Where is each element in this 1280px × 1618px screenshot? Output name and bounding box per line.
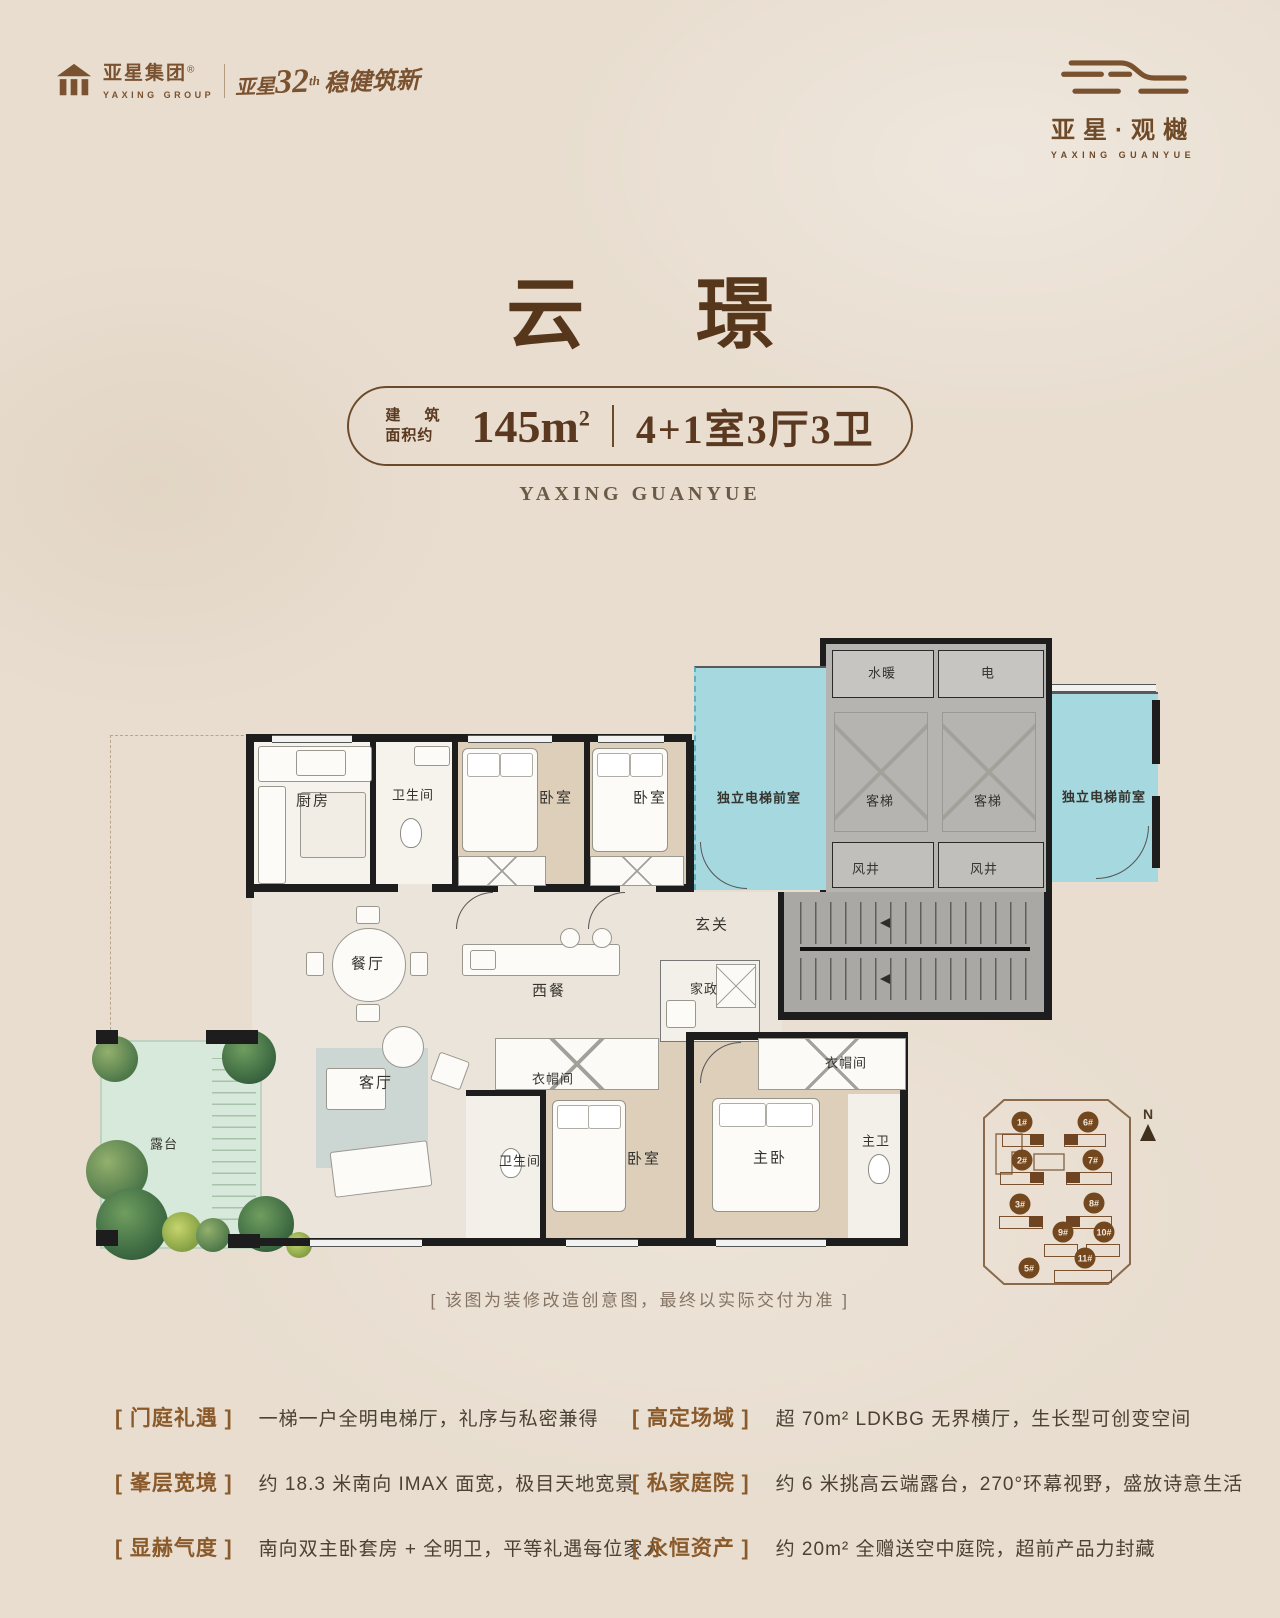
wall <box>1044 892 1052 1018</box>
closet-strip <box>458 856 546 886</box>
feature-tag: [ 门庭礼遇 ] <box>115 1402 233 1432</box>
door-gap <box>398 884 432 892</box>
feature-text: 约 18.3 米南向 IMAX 面宽，极目天地宽景 <box>259 1469 636 1496</box>
building-badge-3: 3# <box>1010 1194 1031 1215</box>
feature-tag: [ 显赫气度 ] <box>115 1532 233 1562</box>
room-label-elevator1: 客梯 <box>866 791 894 810</box>
bath1-sink <box>414 746 450 766</box>
building-badge-10: 10# <box>1094 1222 1115 1243</box>
room-label-lobby-left: 独立电梯前室 <box>717 788 801 807</box>
building-badge-5: 5# <box>1019 1258 1040 1279</box>
bed-3 <box>552 1100 626 1212</box>
wall <box>206 1030 258 1044</box>
stair-arrow <box>880 918 890 928</box>
room-label-shaft1: 风井 <box>852 859 880 878</box>
kitchen-sink <box>296 750 346 776</box>
room-label-master-bath: 主卫 <box>862 1131 890 1150</box>
bath1-toilet <box>400 818 422 848</box>
building-shape <box>1000 1172 1044 1185</box>
room-label-kitchen: 厨房 <box>296 790 330 811</box>
feature-text: 一梯一户全明电梯厅，礼序与私密兼得 <box>259 1404 599 1431</box>
stair-flight-upper <box>800 902 1030 944</box>
stair-rail <box>800 947 1030 951</box>
room-label-living: 客厅 <box>359 1072 393 1093</box>
room-label-lobby-right: 独立电梯前室 <box>1062 787 1146 806</box>
site-map: 1# 6# 2# 7# 3# 8# 9# 10# 11# 5# <box>980 1098 1136 1290</box>
armchair <box>382 1026 424 1068</box>
building-badge-9: 9# <box>1053 1222 1074 1243</box>
wind-shaft-cell-1 <box>832 842 934 888</box>
closet-strip <box>590 856 684 886</box>
building-badge-6: 6# <box>1078 1112 1099 1133</box>
room-label-closet2: 衣帽间 <box>825 1053 867 1072</box>
room-label-terrace: 露台 <box>150 1134 178 1153</box>
room-label-bath2: 卫生间 <box>499 1151 541 1170</box>
room-label-elevator2: 客梯 <box>974 791 1002 810</box>
wall <box>778 1012 1052 1020</box>
dining-chair <box>356 906 380 924</box>
building-shape <box>999 1216 1043 1229</box>
feature-tag: [ 私家庭院 ] <box>632 1467 750 1497</box>
closet-strip <box>495 1038 659 1090</box>
bed-1 <box>462 748 538 852</box>
wall <box>246 734 254 898</box>
elevator-cab-1 <box>834 712 928 832</box>
master-toilet <box>868 1154 890 1184</box>
wall <box>466 1090 546 1096</box>
window <box>468 735 552 743</box>
plant <box>196 1218 230 1252</box>
wall <box>686 1032 694 1244</box>
wall <box>1152 796 1160 868</box>
feature-2: [ 高定场域 ] 超 70m² LDKBG 无界横厅，生长型可创变空间 <box>632 1402 1191 1432</box>
north-label: N <box>1138 1106 1158 1122</box>
feature-text: 约 20m² 全赠送空中庭院，超前产品力封藏 <box>776 1534 1156 1561</box>
room-label-western: 西餐 <box>532 980 566 1001</box>
feature-text: 南向双主卧套房 + 全明卫，平等礼遇每位家人 <box>259 1534 664 1561</box>
room-label-dining: 餐厅 <box>351 953 385 974</box>
room-label-shaft2: 风井 <box>970 859 998 878</box>
north-indicator: N <box>1138 1106 1158 1141</box>
dining-chair <box>410 952 428 976</box>
feature-tag: [ 高定场域 ] <box>632 1402 750 1432</box>
wall <box>96 1030 118 1044</box>
room-label-closet1: 衣帽间 <box>532 1069 574 1088</box>
wall <box>1152 700 1160 764</box>
kitchen-cabinet <box>258 786 286 884</box>
property-line-left <box>110 735 111 1040</box>
feature-5: [ 显赫气度 ] 南向双主卧套房 + 全明卫，平等礼遇每位家人 <box>115 1532 663 1562</box>
feature-4: [ 私家庭院 ] 约 6 米挑高云端露台，270°环幕视野，盛放诗意生活 <box>632 1467 1243 1497</box>
feature-3: [ 峯层宽境 ] 约 18.3 米南向 IMAX 面宽，极目天地宽景 <box>115 1467 635 1497</box>
room-label-bath1: 卫生间 <box>392 785 434 804</box>
window <box>272 735 352 743</box>
room-label-bedroom1: 卧室 <box>539 787 573 808</box>
feature-1: [ 门庭礼遇 ] 一梯一户全明电梯厅，礼序与私密兼得 <box>115 1402 599 1432</box>
building-badge-1: 1# <box>1012 1112 1033 1133</box>
washer <box>666 1000 696 1028</box>
building-badge-11: 11# <box>1075 1248 1096 1269</box>
building-shape <box>1054 1270 1112 1283</box>
building-shape <box>1002 1134 1044 1147</box>
plan-caption: [ 该图为装修改造创意图，最终以实际交付为准 ] <box>0 1286 1280 1311</box>
site-map-outline <box>980 1098 1136 1290</box>
housekeeping-cabinet <box>716 964 756 1008</box>
wall <box>778 892 784 1018</box>
building-badge-7: 7# <box>1083 1150 1104 1171</box>
floor-plan: 厨房 卫生间 卧室 卧室 独立电梯前室 水暖 电 客梯 客梯 风井 风井 独立电… <box>0 0 1280 1618</box>
wall <box>686 740 694 890</box>
feature-tag: [ 峯层宽境 ] <box>115 1467 233 1497</box>
building-badge-2: 2# <box>1012 1150 1033 1171</box>
feature-text: 约 6 米挑高云端露台，270°环幕视野，盛放诗意生活 <box>776 1469 1243 1496</box>
room-label-bedroom3: 卧室 <box>627 1148 661 1169</box>
building-shape <box>1044 1244 1078 1257</box>
room-label-master: 主卧 <box>753 1147 787 1168</box>
room-label-water: 水暖 <box>868 663 896 682</box>
building-shape <box>1064 1134 1106 1147</box>
window <box>1052 684 1156 692</box>
feature-6: [ 永恒资产 ] 约 20m² 全赠送空中庭院，超前产品力封藏 <box>632 1532 1156 1562</box>
stair-arrow <box>880 974 890 984</box>
building-shape <box>1066 1172 1112 1185</box>
room-label-housekeeping: 家政 <box>690 979 718 998</box>
stool <box>560 928 580 948</box>
window <box>716 1239 826 1247</box>
elevator-cab-2 <box>942 712 1036 832</box>
window <box>310 1239 422 1247</box>
room-label-electrical: 电 <box>981 663 995 682</box>
room-label-foyer: 玄关 <box>695 914 729 935</box>
window <box>566 1239 638 1247</box>
feature-text: 超 70m² LDKBG 无界横厅，生长型可创变空间 <box>776 1404 1192 1431</box>
room-label-bedroom2: 卧室 <box>633 787 667 808</box>
north-arrow-icon <box>1140 1124 1156 1141</box>
stool <box>592 928 612 948</box>
island-sink <box>470 950 496 970</box>
dining-chair <box>306 952 324 976</box>
building-badge-8: 8# <box>1084 1193 1105 1214</box>
feature-tag: [ 永恒资产 ] <box>632 1532 750 1562</box>
window <box>598 735 664 743</box>
dining-chair <box>356 1004 380 1022</box>
poster: 亚星集团® YAXING GROUP 亚星32th 稳健筑新 亚星·观樾 YAX… <box>0 0 1280 1618</box>
plant <box>96 1188 168 1260</box>
wall <box>96 1230 118 1246</box>
stair-flight-lower <box>800 958 1030 1000</box>
